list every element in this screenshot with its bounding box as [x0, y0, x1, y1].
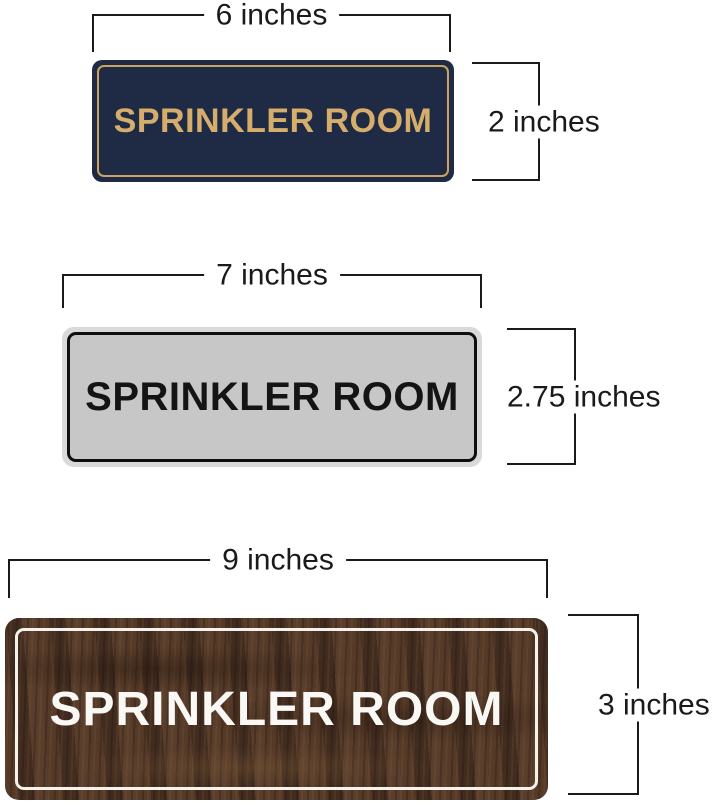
height-dimension-bracket-silver: 2.75 inches — [507, 328, 576, 465]
height-dimension-label-silver: 2.75 inches — [495, 380, 672, 413]
width-dimension-label-wood: 9 inches — [210, 544, 346, 577]
sign-frame-wood: SPRINKLER ROOM — [15, 628, 538, 790]
dimension-tick — [449, 14, 451, 52]
height-dimension-label-wood: 3 inches — [586, 688, 710, 721]
dimension-tick — [480, 274, 482, 308]
dimension-tick — [507, 328, 576, 330]
dimension-tick — [568, 793, 639, 795]
width-dimension-bracket-silver: 7 inches — [62, 274, 482, 308]
sign-plate-wood: SPRINKLER ROOM — [5, 618, 548, 800]
width-dimension-label-navy: 6 inches — [204, 0, 340, 32]
sign-text-silver: SPRINKLER ROOM — [85, 375, 459, 420]
dimension-tick — [507, 463, 576, 465]
width-dimension-label-silver: 7 inches — [204, 259, 340, 292]
dimension-tick — [62, 274, 64, 308]
width-dimension-bracket-navy: 6 inches — [92, 14, 451, 52]
sign-text-wood: SPRINKLER ROOM — [49, 682, 503, 737]
sign-frame-silver: SPRINKLER ROOM — [67, 332, 477, 462]
height-dimension-bracket-navy: 2 inches — [472, 62, 540, 181]
sign-plate-silver: SPRINKLER ROOM — [62, 327, 482, 467]
sign-plate-navy: SPRINKLER ROOM — [92, 60, 454, 182]
dimension-tick — [472, 62, 540, 64]
sign-text-navy: SPRINKLER ROOM — [114, 102, 433, 141]
product-size-diagram: 6 inches SPRINKLER ROOM 2 inches 7 inche… — [0, 0, 722, 805]
dimension-tick — [92, 14, 94, 52]
dimension-tick — [472, 179, 540, 181]
dimension-tick — [8, 559, 10, 598]
sign-frame-navy: SPRINKLER ROOM — [97, 65, 449, 177]
height-dimension-bracket-wood: 3 inches — [568, 614, 639, 795]
height-dimension-label-navy: 2 inches — [476, 105, 612, 138]
width-dimension-bracket-wood: 9 inches — [8, 559, 548, 598]
dimension-tick — [568, 614, 639, 616]
dimension-tick — [546, 559, 548, 598]
